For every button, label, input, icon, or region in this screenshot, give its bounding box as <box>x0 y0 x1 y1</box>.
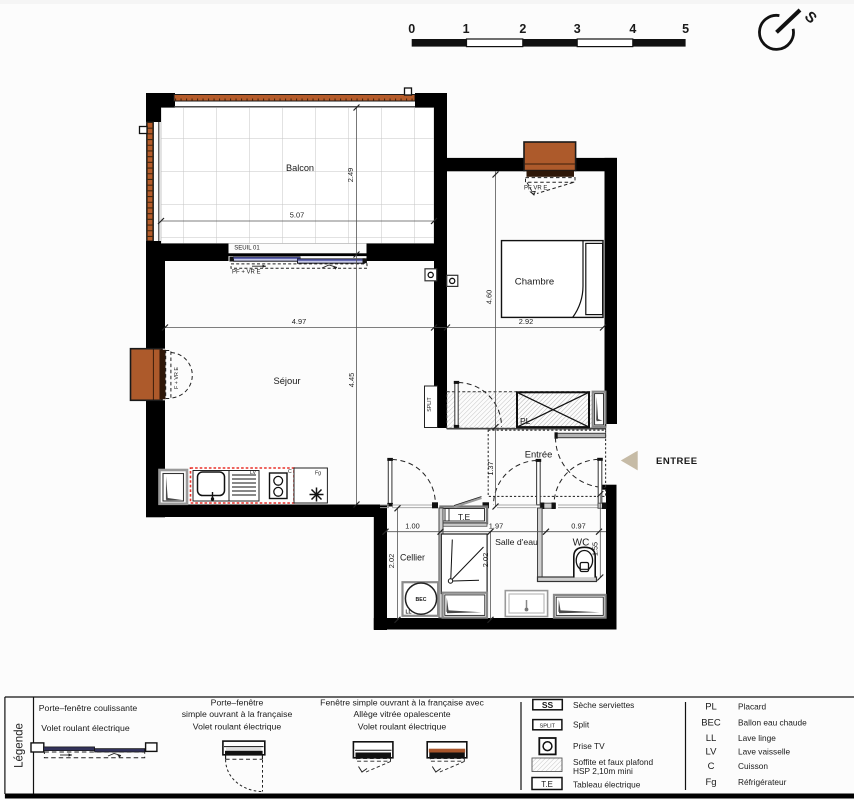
svg-text:Tableau électrique: Tableau électrique <box>573 780 641 790</box>
svg-text:F + VR E: F + VR E <box>174 367 180 389</box>
svg-text:SEUIL 01: SEUIL 01 <box>234 246 260 252</box>
svg-text:Placard: Placard <box>738 701 767 711</box>
svg-text:BEC: BEC <box>701 718 721 729</box>
svg-text:Balcon: Balcon <box>286 163 314 173</box>
svg-text:5: 5 <box>682 22 689 36</box>
svg-text:1.55: 1.55 <box>591 542 600 556</box>
svg-text:Porte–fenêtre coulissante: Porte–fenêtre coulissante <box>39 703 138 713</box>
svg-text:2.02: 2.02 <box>481 553 490 567</box>
svg-text:2.02: 2.02 <box>387 554 396 568</box>
svg-text:1.97: 1.97 <box>489 522 503 531</box>
svg-text:simple ouvrant à la française: simple ouvrant à la française <box>182 709 293 719</box>
svg-text:0.97: 0.97 <box>571 522 585 531</box>
svg-text:1: 1 <box>463 22 470 36</box>
svg-text:1.37: 1.37 <box>486 462 495 476</box>
svg-text:SPLIT: SPLIT <box>427 396 433 411</box>
svg-text:Fenêtre simple ouvrant à la fr: Fenêtre simple ouvrant à la française av… <box>320 698 484 708</box>
svg-text:LV: LV <box>706 747 718 758</box>
svg-text:PL: PL <box>520 416 531 426</box>
svg-text:Cuisson: Cuisson <box>738 761 768 771</box>
svg-text:Volet roulant électrique: Volet roulant électrique <box>358 722 447 732</box>
svg-text:2.92: 2.92 <box>519 317 533 326</box>
svg-text:5.07: 5.07 <box>290 211 304 220</box>
svg-text:Lave vaisselle: Lave vaisselle <box>738 747 791 757</box>
svg-text:PL: PL <box>705 702 717 713</box>
svg-text:Réfrigérateur: Réfrigérateur <box>738 777 787 787</box>
svg-text:C: C <box>708 761 715 772</box>
svg-text:LL: LL <box>406 610 412 616</box>
svg-text:Volet roulant électrique: Volet roulant électrique <box>193 722 282 732</box>
svg-text:Ballon eau chaude: Ballon eau chaude <box>738 718 807 728</box>
svg-text:SS: SS <box>542 700 554 710</box>
svg-text:2: 2 <box>519 22 526 36</box>
svg-text:Sèche serviettes: Sèche serviettes <box>573 700 634 710</box>
svg-text:BEC: BEC <box>416 597 427 603</box>
svg-text:ENTREE: ENTREE <box>656 456 698 467</box>
svg-text:T.E: T.E <box>458 512 471 522</box>
svg-text:3: 3 <box>574 22 581 36</box>
svg-text:HSP 2,10m mini: HSP 2,10m mini <box>573 766 633 776</box>
svg-text:2.49: 2.49 <box>346 168 355 182</box>
svg-text:0: 0 <box>408 22 415 36</box>
svg-text:PF + VR E: PF + VR E <box>232 269 261 275</box>
svg-text:LV: LV <box>250 470 256 476</box>
svg-text:Allège vitrée opalescente: Allège vitrée opalescente <box>353 709 450 719</box>
svg-text:Split: Split <box>573 720 590 730</box>
svg-text:Légende: Légende <box>14 723 26 768</box>
svg-text:4.60: 4.60 <box>485 290 494 304</box>
svg-text:Volet roulant électrique: Volet roulant électrique <box>41 723 130 733</box>
svg-text:Chambre: Chambre <box>515 277 554 288</box>
svg-text:Séjour: Séjour <box>273 375 300 386</box>
svg-text:SPLIT: SPLIT <box>540 723 556 729</box>
svg-text:Entrée: Entrée <box>525 449 553 460</box>
svg-text:4.97: 4.97 <box>292 317 306 326</box>
svg-text:Lave linge: Lave linge <box>738 733 776 743</box>
svg-text:PF VR E: PF VR E <box>524 186 547 192</box>
svg-text:Cellier: Cellier <box>400 553 425 563</box>
svg-text:Fg: Fg <box>705 777 716 788</box>
svg-text:LL: LL <box>706 733 717 744</box>
svg-text:4.45: 4.45 <box>347 373 356 387</box>
svg-text:1.00: 1.00 <box>405 522 419 531</box>
svg-text:C: C <box>288 469 292 475</box>
svg-text:4: 4 <box>629 22 636 36</box>
svg-text:Fg: Fg <box>315 471 321 477</box>
svg-text:Porte–fenêtre: Porte–fenêtre <box>211 698 264 708</box>
svg-text:Prise TV: Prise TV <box>573 741 605 751</box>
svg-text:Salle d'eau: Salle d'eau <box>495 537 538 547</box>
svg-text:T.E: T.E <box>541 780 553 789</box>
